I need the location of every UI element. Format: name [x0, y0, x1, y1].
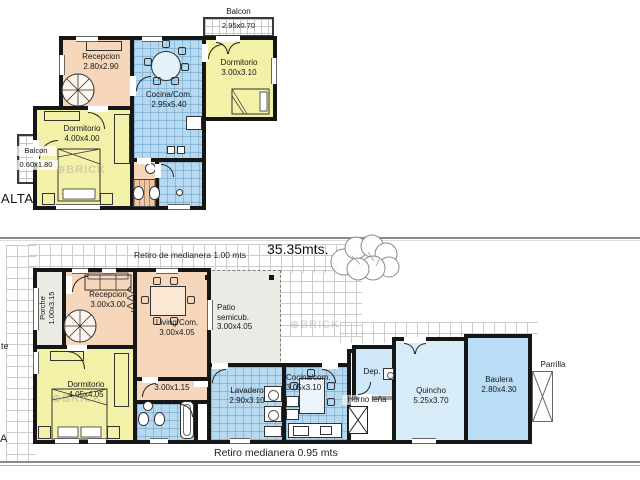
room-label-baulera: Baulera2.80x4.30 — [472, 375, 526, 394]
door-gap — [67, 345, 87, 351]
closet — [44, 111, 80, 121]
property-line-bottom-thin — [0, 465, 640, 466]
upper-plan-title: ALTA — [1, 191, 34, 206]
bed — [56, 148, 102, 206]
watermark: ⊕BRICK — [56, 163, 106, 176]
horno-cross-icon — [348, 406, 368, 434]
toilet — [138, 412, 149, 426]
sofa — [84, 272, 132, 292]
retiro-top-label: Retiro de medianera 1.00 mts — [134, 250, 246, 260]
retiro-bottom-label: Retiro medianera 0.95 mts — [214, 447, 338, 459]
chair — [178, 47, 186, 55]
watermark: ⊕BRICK — [290, 318, 340, 331]
bidet — [154, 412, 165, 426]
stove-icon — [186, 116, 202, 130]
room-label-upper-recepcion: Recepcion2.80x2.90 — [68, 52, 134, 71]
bed — [231, 88, 271, 116]
kitchen-sink — [177, 146, 185, 154]
balcony-left-label: Balcon — [16, 146, 56, 156]
nightstand — [100, 193, 113, 205]
toilet — [133, 186, 144, 200]
door-gap — [322, 363, 338, 369]
watermark: ⊕BRICK — [52, 392, 102, 405]
chair — [171, 77, 179, 85]
window — [76, 36, 98, 42]
chair — [181, 63, 189, 71]
room-label-ground-recepcion: Recepcion3.00x3.00 — [80, 290, 136, 309]
nightstand — [38, 426, 51, 439]
nightstand — [107, 426, 120, 439]
chair — [153, 277, 161, 285]
property-line-middle — [0, 237, 640, 239]
patio-post — [269, 275, 274, 280]
balcony-top-dim: 2.95x0.70 — [204, 21, 273, 31]
kitchen-sink — [320, 426, 332, 435]
closet — [86, 41, 122, 51]
door-gap — [88, 106, 108, 112]
dining-table — [150, 286, 186, 316]
window — [102, 268, 116, 274]
stove-icon — [286, 409, 299, 420]
room-label-horno: Horno leña — [342, 395, 392, 405]
room-label-upper-dormitorio-right: Dormitorio3.00x3.10 — [207, 58, 271, 77]
balcony-left-dim: 0.60x1.80 — [14, 160, 58, 170]
chair — [187, 296, 195, 304]
room-label-ground-cocina: Cocina/com.3.05x3.10 — [286, 373, 350, 392]
window — [271, 58, 277, 84]
chair — [144, 58, 152, 66]
parrilla-box — [532, 371, 553, 422]
patio-post — [205, 275, 210, 280]
balcony-top-label: Balcon — [204, 7, 273, 17]
chair — [162, 40, 170, 48]
door-gap — [130, 76, 136, 96]
parrilla-cross-icon — [533, 372, 552, 421]
room-label-upper-dormitorio-left: Dormitorio4.00x4.00 — [50, 124, 114, 143]
window — [33, 352, 39, 374]
window — [156, 268, 178, 274]
door-gap — [137, 158, 151, 164]
spiral-staircase-icon — [61, 73, 95, 107]
chair — [141, 296, 149, 304]
room-label-quincho: Quincho5.25x3.70 — [404, 386, 458, 405]
shower-drain — [176, 189, 183, 196]
window — [142, 36, 162, 42]
ground-plan-title: A — [0, 433, 7, 445]
door-gap-balcony — [216, 36, 240, 42]
floor-plan-canvas: Balcon 2.95x0.70 Balcon 0.60x1.80 Recepc… — [0, 0, 640, 480]
window — [88, 438, 106, 444]
chair — [153, 77, 161, 85]
bidet — [149, 186, 160, 200]
window — [55, 438, 79, 444]
chair — [170, 277, 178, 285]
property-line-bottom — [0, 461, 640, 463]
room-label-patio: Patiosemicub.3.00x4.05 — [217, 303, 277, 332]
stove-icon — [293, 426, 309, 436]
window — [150, 438, 168, 444]
window — [56, 204, 100, 210]
sidewalk-grid-left — [6, 245, 36, 461]
nightstand — [42, 193, 55, 205]
bathroom-sink — [143, 401, 153, 411]
dep-fixture-dot — [387, 372, 394, 379]
window — [59, 55, 65, 75]
closet — [114, 114, 130, 164]
stove-icon — [286, 396, 299, 407]
room-label-lavadero: Lavadero2.90x3.10 — [218, 386, 276, 405]
washing-machine — [264, 406, 282, 422]
spiral-staircase-icon — [63, 309, 97, 343]
room-label-living: Living/Com.3.00x4.05 — [145, 318, 209, 337]
street-edge-label: te — [1, 341, 9, 351]
total-length-label: 35.35mts. — [267, 241, 328, 257]
window — [230, 438, 250, 444]
kitchen-sink — [167, 146, 175, 154]
washing-machine-door — [268, 410, 279, 421]
room-label-ground-hall-dim: 3.00x1.15 — [146, 383, 198, 393]
laundry-sink — [264, 426, 282, 437]
door-gap-quincho — [404, 337, 426, 343]
room-label-porche: Porche1.00x3.15 — [38, 271, 60, 345]
room-label-upper-cocina: Cocina/Com.2.95x5.40 — [139, 90, 199, 109]
room-label-dep: Dep. — [358, 367, 386, 377]
window — [72, 268, 88, 274]
window — [168, 204, 190, 210]
tree-icon — [326, 234, 404, 282]
room-label-parrilla: Parrilla — [532, 360, 574, 370]
chair — [327, 398, 335, 406]
window — [412, 438, 436, 444]
